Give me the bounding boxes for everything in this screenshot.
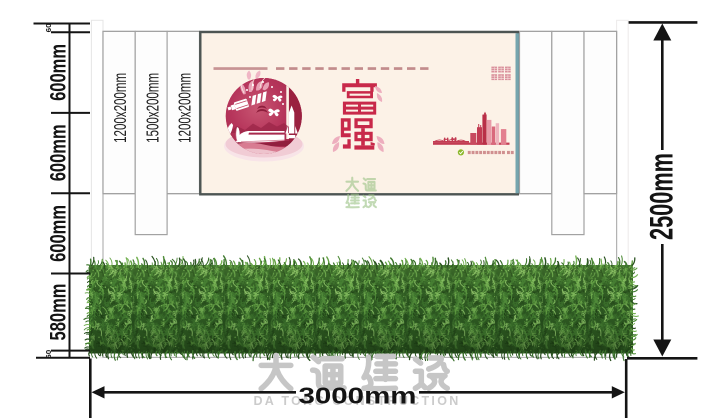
svg-text:60: 60 xyxy=(44,23,53,32)
svg-text:1200x200mm: 1200x200mm xyxy=(110,73,130,143)
svg-text:600mm: 600mm xyxy=(45,44,70,101)
svg-text:580mm: 580mm xyxy=(45,284,70,341)
svg-text:1200x200mm: 1200x200mm xyxy=(174,73,194,143)
svg-text:600mm: 600mm xyxy=(45,124,70,181)
svg-text:3000mm: 3000mm xyxy=(299,382,417,408)
svg-text:600mm: 600mm xyxy=(45,205,70,262)
svg-text:1500x200mm: 1500x200mm xyxy=(142,73,162,143)
svg-text:60: 60 xyxy=(44,350,53,359)
svg-text:2500mm: 2500mm xyxy=(644,153,680,240)
